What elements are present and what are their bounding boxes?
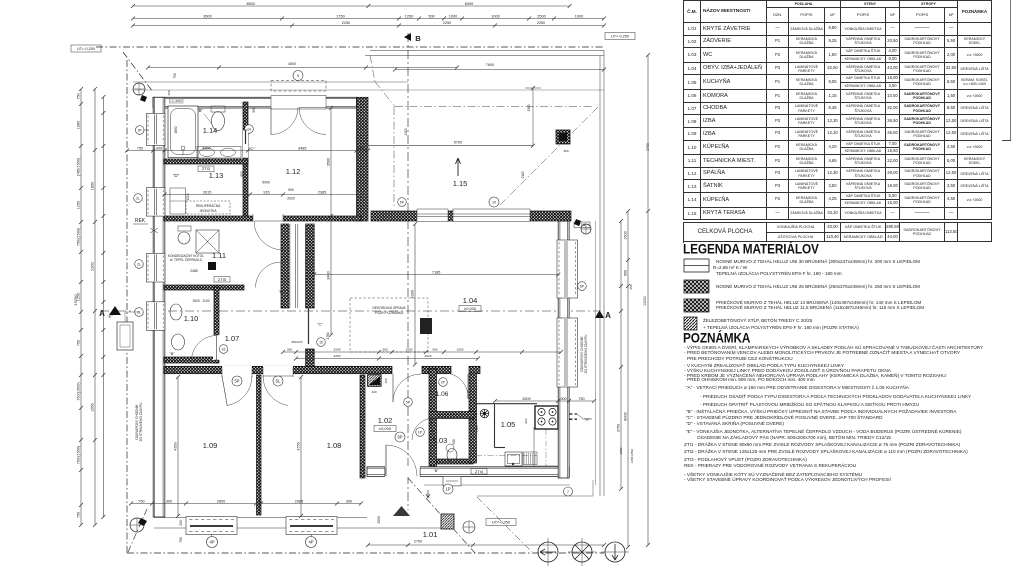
svg-text:3400: 3400 (327, 271, 331, 279)
svg-text:2480: 2480 (190, 269, 198, 273)
svg-text:A: A (99, 309, 105, 318)
svg-text:2385: 2385 (318, 190, 326, 194)
svg-text:1.07: 1.07 (225, 334, 240, 343)
svg-text:POZRI POZNÁMKA: POZRI POZNÁMKA (375, 311, 404, 315)
svg-text:500: 500 (624, 270, 628, 276)
svg-text:300: 300 (167, 90, 171, 95)
svg-text:ZO ŠTRKOVÉHO ZÁSYPU: ZO ŠTRKOVÉHO ZÁSYPU (583, 334, 588, 374)
svg-text:750: 750 (77, 512, 81, 518)
svg-text:ZO ŠTRKOVÉHO ZÁSYPU: ZO ŠTRKOVÉHO ZÁSYPU (138, 402, 143, 442)
svg-text:1.04: 1.04 (463, 296, 478, 305)
svg-text:300: 300 (560, 397, 566, 401)
svg-text:2L: 2L (137, 311, 141, 315)
svg-text:8000: 8000 (624, 412, 628, 420)
svg-text:1.06: 1.06 (436, 391, 449, 398)
svg-text:ZTI5: ZTI5 (218, 277, 227, 282)
svg-text:900: 900 (524, 418, 528, 423)
svg-text:365: 365 (382, 348, 387, 352)
svg-text:B: B (415, 34, 421, 43)
svg-text:115: 115 (470, 409, 475, 413)
svg-text:1.14: 1.14 (203, 126, 218, 135)
svg-text:2250: 2250 (334, 354, 341, 358)
svg-text:600: 600 (240, 171, 244, 177)
svg-text:750: 750 (578, 397, 584, 401)
svg-text:915: 915 (263, 190, 269, 194)
svg-text:750: 750 (173, 73, 177, 79)
svg-text:16: 16 (222, 348, 226, 352)
svg-text:REKUPERAČNÁ: REKUPERAČNÁ (196, 203, 221, 208)
svg-text:UT=-0,250: UT=-0,250 (77, 47, 95, 51)
svg-text:115: 115 (255, 499, 261, 503)
svg-text:2500: 2500 (377, 516, 381, 524)
svg-text:1.15: 1.15 (453, 179, 468, 188)
svg-text:±0,000: ±0,000 (379, 426, 392, 431)
svg-text:300: 300 (166, 499, 172, 503)
svg-text:ZTI4: ZTI4 (475, 469, 484, 474)
svg-text:4P: 4P (209, 540, 214, 545)
svg-text:1250: 1250 (405, 14, 413, 18)
svg-text:1.12: 1.12 (286, 167, 301, 176)
svg-text:9P: 9P (397, 435, 402, 440)
svg-text:6000: 6000 (465, 2, 473, 6)
svg-text:750/(1500): 750/(1500) (77, 382, 81, 401)
svg-text:13250: 13250 (73, 294, 78, 306)
svg-text:4350: 4350 (174, 442, 178, 450)
svg-text:2300: 2300 (202, 146, 210, 150)
svg-text:1000: 1000 (449, 14, 457, 18)
svg-text:750: 750 (137, 146, 143, 150)
svg-text:3750: 3750 (617, 424, 621, 432)
svg-text:1780: 1780 (326, 332, 330, 339)
svg-text:5P: 5P (400, 201, 405, 205)
svg-text:“D”: “D” (173, 173, 180, 178)
svg-text:UT=-0,250: UT=-0,250 (492, 521, 510, 525)
svg-text:1.05: 1.05 (501, 420, 516, 429)
svg-text:2615: 2615 (203, 190, 211, 194)
svg-text:750: 750 (77, 340, 81, 346)
svg-text:2L: 2L (137, 263, 141, 267)
svg-text:300: 300 (359, 146, 365, 150)
svg-text:“A”: “A” (584, 417, 590, 422)
svg-text:2020: 2020 (287, 197, 295, 201)
svg-text:"B": "B" (169, 351, 175, 356)
svg-text:4300: 4300 (411, 290, 415, 298)
svg-text:2505: 2505 (334, 348, 341, 352)
svg-text:2600: 2600 (522, 397, 530, 401)
svg-text:300: 300 (563, 149, 568, 153)
svg-text:1000: 1000 (406, 348, 413, 352)
svg-text:1480 (950): 1480 (950) (630, 449, 634, 464)
svg-text:2P: 2P (441, 381, 446, 385)
svg-text:1650: 1650 (91, 403, 95, 411)
svg-text:el. TEPEL ČERPADLO: el. TEPEL ČERPADLO (170, 257, 203, 262)
svg-text:750/(1500): 750/(1500) (77, 227, 81, 246)
svg-text:1500: 1500 (457, 348, 464, 352)
svg-text:300: 300 (346, 499, 352, 503)
svg-text:800/1970: 800/1970 (292, 340, 303, 344)
svg-text:3500: 3500 (327, 158, 331, 166)
svg-text:400: 400 (371, 390, 376, 394)
svg-text:“B”: “B” (197, 108, 203, 113)
svg-text:5000: 5000 (262, 181, 270, 185)
svg-text:4150: 4150 (404, 128, 408, 135)
svg-text:NEHORĽAVÁ ÚPRAVA: NEHORĽAVÁ ÚPRAVA (373, 305, 407, 310)
svg-text:8500: 8500 (246, 2, 254, 6)
svg-text:750: 750 (138, 499, 144, 503)
svg-text:300: 300 (179, 520, 183, 526)
svg-text:2250: 2250 (443, 21, 451, 25)
svg-text:900: 900 (288, 188, 294, 192)
svg-text:±0,000: ±0,000 (464, 306, 477, 311)
svg-text:3750: 3750 (297, 442, 301, 450)
svg-text:2750: 2750 (414, 540, 422, 544)
svg-text:7: 7 (567, 490, 569, 494)
svg-text:1250: 1250 (77, 201, 81, 209)
svg-text:1250: 1250 (619, 447, 623, 454)
svg-text:550: 550 (252, 107, 256, 113)
svg-text:1000: 1000 (575, 14, 583, 18)
svg-text:500: 500 (428, 14, 434, 18)
svg-text:1080: 1080 (77, 121, 81, 129)
svg-text:2250: 2250 (537, 21, 545, 25)
svg-text:900: 900 (452, 439, 456, 445)
svg-text:2750: 2750 (646, 143, 650, 151)
svg-text:5700: 5700 (454, 141, 462, 145)
svg-text:2100: 2100 (521, 171, 525, 178)
svg-text:“E”: “E” (107, 314, 113, 319)
svg-text:1.13: 1.13 (209, 171, 224, 180)
svg-text:5P: 5P (234, 379, 239, 384)
svg-text:750/(1500): 750/(1500) (77, 445, 81, 464)
svg-text:10: 10 (492, 201, 496, 205)
svg-text:1P: 1P (418, 431, 423, 435)
svg-text:2L: 2L (136, 197, 140, 201)
svg-text:5P: 5P (406, 401, 411, 405)
svg-text:1.10: 1.10 (184, 314, 199, 323)
svg-text:1500: 1500 (192, 299, 200, 303)
svg-text:250: 250 (629, 284, 633, 289)
svg-text:1P: 1P (445, 487, 450, 492)
svg-text:1.11: 1.11 (212, 251, 226, 260)
svg-text:1850: 1850 (174, 126, 178, 133)
svg-text:7185: 7185 (432, 270, 440, 274)
svg-text:7600: 7600 (486, 63, 494, 67)
svg-text:1400: 1400 (475, 425, 479, 432)
svg-text:2620: 2620 (425, 354, 432, 358)
svg-text:1750: 1750 (336, 14, 344, 18)
svg-text:1.01: 1.01 (423, 530, 438, 539)
svg-text:9: 9 (297, 74, 299, 78)
svg-text:3500: 3500 (203, 14, 211, 18)
svg-text:JEDNOTKA: JEDNOTKA (199, 209, 217, 213)
svg-text:750: 750 (179, 537, 183, 543)
svg-text:900: 900 (432, 348, 437, 352)
svg-text:400: 400 (384, 378, 388, 383)
svg-text:13250: 13250 (643, 296, 647, 306)
svg-text:2800: 2800 (217, 499, 225, 503)
svg-text:365: 365 (287, 348, 292, 352)
svg-text:2250: 2250 (342, 21, 350, 25)
svg-text:A: A (605, 311, 611, 320)
svg-text:300: 300 (156, 146, 162, 150)
svg-text:“B”: “B” (433, 469, 439, 473)
svg-text:4500: 4500 (288, 62, 296, 66)
svg-text:2300: 2300 (91, 262, 95, 270)
svg-text:1.02: 1.02 (378, 416, 393, 425)
svg-text:2500: 2500 (537, 14, 545, 18)
svg-text:1100: 1100 (202, 299, 209, 303)
svg-text:3P: 3P (138, 129, 143, 133)
svg-text:v.o.+2600: v.o.+2600 (170, 99, 182, 103)
svg-text:2985: 2985 (295, 499, 303, 503)
svg-text:1000: 1000 (491, 14, 499, 18)
svg-text:750: 750 (77, 93, 81, 99)
svg-text:1.03: 1.03 (433, 436, 448, 445)
svg-text:1.08: 1.08 (327, 441, 342, 450)
svg-text:15: 15 (319, 341, 323, 345)
svg-text:“C”: “C” (317, 322, 323, 327)
svg-text:5L: 5L (276, 379, 281, 384)
svg-text:UT=-0,250: UT=-0,250 (611, 35, 629, 39)
svg-text:1850: 1850 (91, 182, 95, 190)
svg-text:1500: 1500 (624, 231, 628, 239)
svg-text:(785/1500): (785/1500) (77, 157, 81, 176)
svg-text:REK: REK (135, 218, 146, 224)
svg-text:6P: 6P (580, 285, 585, 289)
svg-text:1.09: 1.09 (203, 441, 218, 450)
svg-text:1360: 1360 (527, 104, 531, 111)
svg-text:“D”: “D” (278, 290, 284, 294)
svg-text:4P: 4P (308, 540, 313, 545)
svg-text:3485: 3485 (298, 146, 306, 150)
